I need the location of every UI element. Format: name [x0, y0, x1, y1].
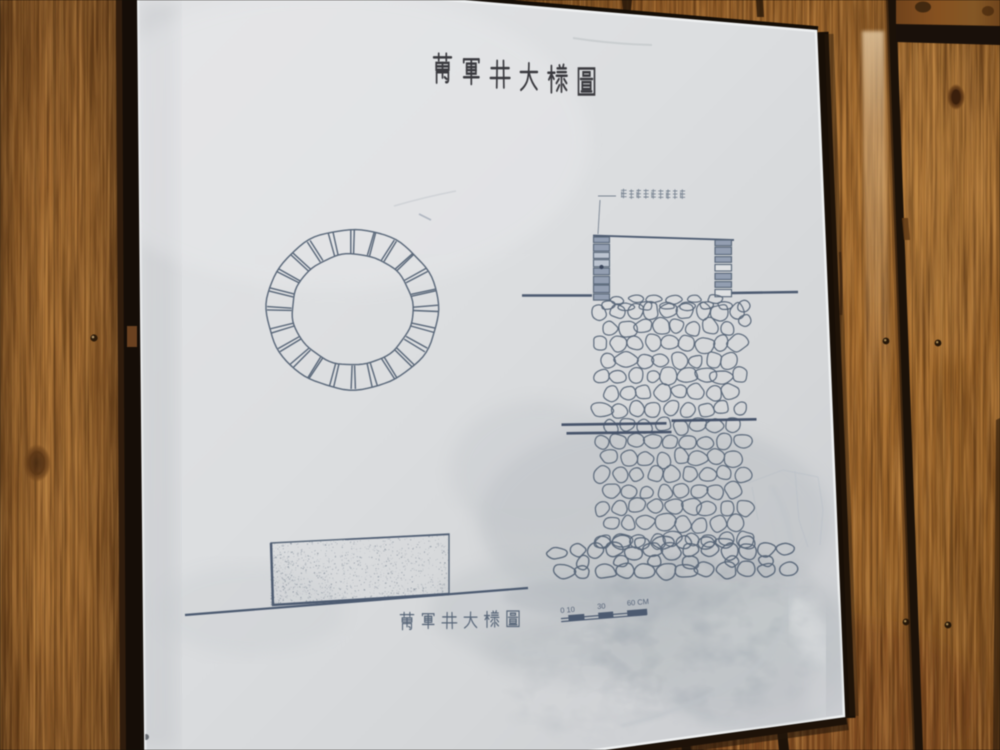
svg-text:0 10: 0 10 — [560, 605, 575, 615]
svg-text:60 CM: 60 CM — [627, 597, 650, 608]
svg-text:30: 30 — [597, 601, 606, 611]
